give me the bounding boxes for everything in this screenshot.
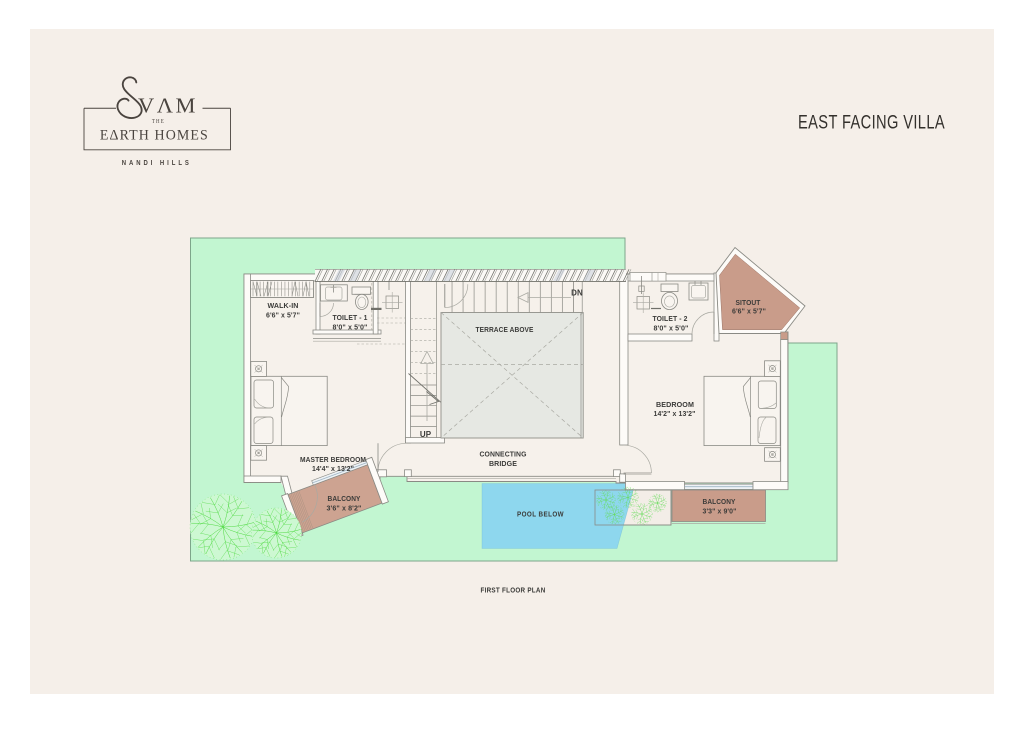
svg-text:3'3" x 9'0": 3'3" x 9'0" xyxy=(703,507,737,516)
svg-text:6'6" x 5'7": 6'6" x 5'7" xyxy=(732,307,766,316)
svg-text:WALK-IN: WALK-IN xyxy=(268,301,299,310)
svg-text:6'6" x 5'7": 6'6" x 5'7" xyxy=(266,311,300,320)
svg-text:CONNECTING: CONNECTING xyxy=(480,450,527,459)
svg-text:3'6" x 8'2": 3'6" x 8'2" xyxy=(327,504,362,513)
svg-text:NANDI HILLS: NANDI HILLS xyxy=(122,158,192,167)
svg-text:8'0" x 5'0": 8'0" x 5'0" xyxy=(333,323,368,332)
svg-text:MASTER BEDROOM: MASTER BEDROOM xyxy=(300,455,366,464)
svg-text:POOL BELOW: POOL BELOW xyxy=(517,510,564,519)
svg-text:UP: UP xyxy=(420,430,432,439)
svg-text:VΛM: VΛM xyxy=(138,94,198,118)
svg-text:THE: THE xyxy=(152,118,165,125)
svg-text:BALCONY: BALCONY xyxy=(328,494,361,503)
svg-text:TERRACE ABOVE: TERRACE ABOVE xyxy=(476,325,534,334)
svg-text:TOILET - 2: TOILET - 2 xyxy=(653,314,688,323)
svg-text:DN: DN xyxy=(571,289,583,298)
svg-text:BEDROOM: BEDROOM xyxy=(656,400,694,409)
svg-text:8'0" x 5'0": 8'0" x 5'0" xyxy=(654,324,689,333)
svg-text:14'4" x 13'2": 14'4" x 13'2" xyxy=(312,464,354,473)
svg-text:FIRST FLOOR PLAN: FIRST FLOOR PLAN xyxy=(481,586,546,595)
svg-text:14'2" x 13'2": 14'2" x 13'2" xyxy=(654,409,696,418)
svg-text:BALCONY: BALCONY xyxy=(703,497,736,506)
svg-text:BRIDGE: BRIDGE xyxy=(489,459,517,468)
svg-text:TOILET - 1: TOILET - 1 xyxy=(333,313,368,322)
svg-text:EΔRTH HOMES: EΔRTH HOMES xyxy=(100,128,209,144)
svg-text:EAST FACING VILLA: EAST FACING VILLA xyxy=(798,112,945,134)
